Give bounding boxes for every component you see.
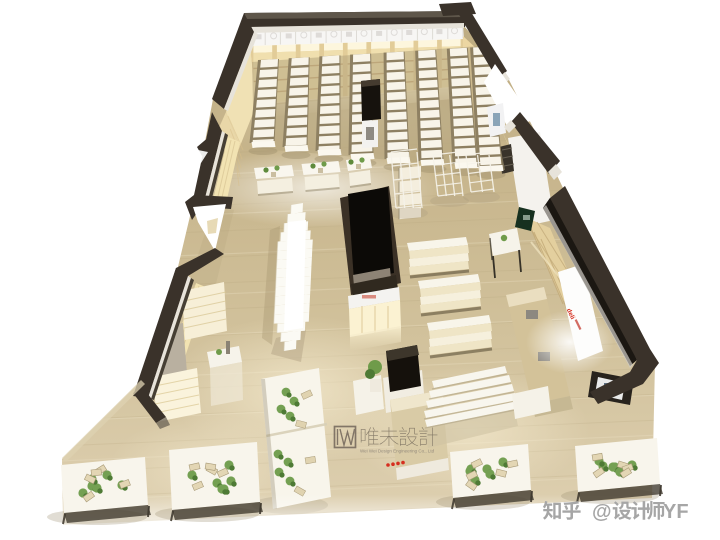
svg-text:Wei Wei Design Engineering Co.: Wei Wei Design Engineering Co., Ltd <box>360 449 435 454</box>
svg-text:YF: YF <box>663 501 689 523</box>
svg-text:@: @ <box>592 501 612 523</box>
